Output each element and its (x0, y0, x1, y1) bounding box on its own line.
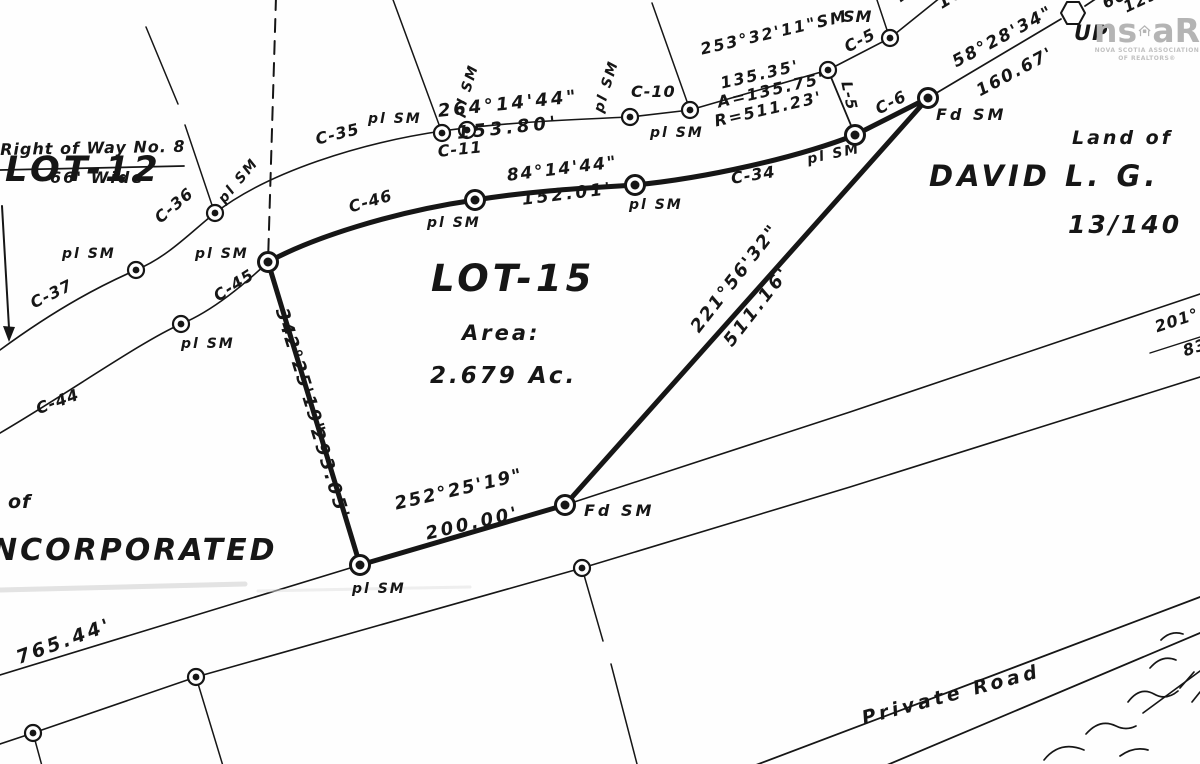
south-road-upper (0, 294, 1200, 675)
scan-smudge (0, 584, 245, 590)
fd-sm-1: Fd SM (936, 107, 1006, 124)
nsar-tagline-2: OF REALTORS® (1094, 55, 1200, 63)
division-line-1 (146, 27, 178, 104)
lot15-area-label: Area: (462, 322, 540, 344)
nsar-logo-prefix: ns (1094, 14, 1137, 47)
monument-marker (882, 30, 898, 46)
pl-sm-5: pl SM (368, 112, 422, 127)
curve-c10: C-10 (631, 84, 676, 101)
nsar-logo: ns aR NOVA SCOTIA ASSOCIATION OF REALTOR… (1094, 14, 1200, 62)
monument-marker (919, 89, 938, 108)
monument-marker (173, 316, 189, 332)
adjoiner-owner: DAVID L. G. (929, 161, 1159, 191)
nsar-tagline-1: NOVA SCOTIA ASSOCIATION (1094, 47, 1200, 55)
survey-plat-page: LOT-12LOT-13Right of Way No. 866' Widepl… (0, 0, 1200, 764)
right-of-way-width: 66' Wide (50, 170, 144, 187)
adjoiner-deed: 13/140 (1068, 212, 1182, 238)
owner-incorporated: NCORPORATED (0, 535, 278, 567)
monument-marker (207, 205, 223, 221)
monument-marker (351, 556, 370, 575)
fd-sm-2: Fd SM (584, 503, 654, 520)
monument-marker (25, 725, 41, 741)
monument-marker (434, 125, 450, 141)
lot15-area-value: 2.679 Ac. (430, 364, 577, 388)
monument-marker (466, 191, 485, 210)
monument-marker (574, 560, 590, 576)
south-lot-stub-2 (196, 677, 223, 764)
pl-sm-3: pl SM (195, 247, 249, 262)
owner-of-label: of (8, 493, 31, 513)
pl-sm-9: pl SM (427, 216, 481, 231)
pl-sm-4: pl SM (181, 337, 235, 352)
monument-marker (626, 176, 645, 195)
pl-sm-8: pl SM (650, 126, 704, 141)
house-icon (1138, 18, 1151, 44)
monument-marker (128, 262, 144, 278)
adjoiner-land-of: Land of (1072, 129, 1173, 149)
monument-marker (188, 669, 204, 685)
plat-drawing (0, 0, 1200, 764)
arrow-line (2, 206, 9, 328)
brush-squiggles (1044, 633, 1200, 760)
pl-sm-1: pl SM (62, 247, 116, 262)
right-of-way-label: Right of Way No. 8 (0, 139, 186, 159)
monument-marker (556, 496, 575, 515)
pl-sm-10: pl SM (629, 198, 683, 213)
lot13-label: LOT-13 (196, 0, 353, 3)
pl-sm-12: pl SM (352, 582, 406, 597)
dashed-lot-line (268, 0, 276, 262)
monument-marker (682, 102, 698, 118)
monument-marker (622, 109, 638, 125)
monument-marker (259, 253, 278, 272)
lot15-label: LOT-15 (431, 260, 595, 299)
south-lot-stub-3 (582, 568, 637, 764)
nsar-logo-suffix: aR (1152, 14, 1200, 47)
